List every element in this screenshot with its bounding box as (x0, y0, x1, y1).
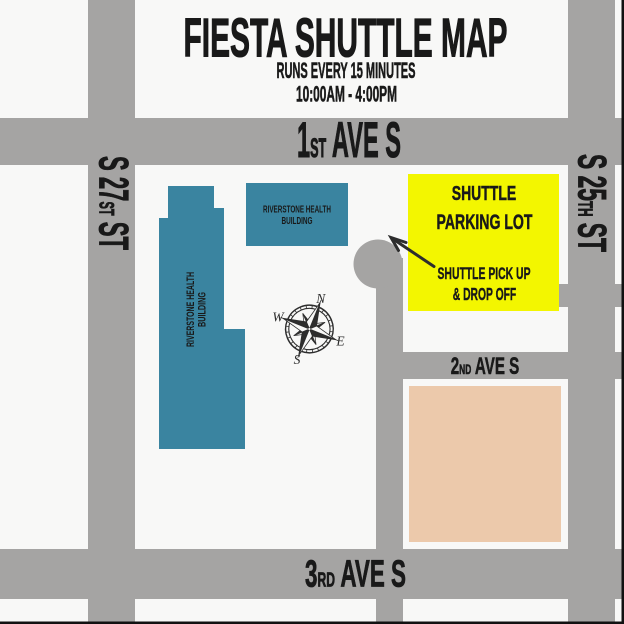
svg-text:10:00AM - 4:00PM: 10:00AM - 4:00PM (296, 82, 397, 107)
svg-text:W: W (272, 310, 285, 325)
svg-text:RIVERSTONE HEALTH: RIVERSTONE HEALTH (263, 204, 331, 216)
svg-text:N: N (315, 291, 326, 306)
svg-text:RIVERSTONE HEALTH: RIVERSTONE HEALTH (185, 272, 197, 347)
svg-text:BUILDING: BUILDING (197, 292, 209, 327)
svg-text:SHUTTLE PICK UP: SHUTTLE PICK UP (438, 265, 531, 283)
svg-text:BUILDING: BUILDING (282, 215, 313, 227)
svg-text:SHUTTLE: SHUTTLE (452, 182, 517, 205)
svg-text:RUNS EVERY 15 MINUTES: RUNS EVERY 15 MINUTES (277, 58, 416, 83)
svg-text:PARKING LOT: PARKING LOT (437, 210, 533, 234)
svg-text:& DROP OFF: & DROP OFF (453, 284, 517, 304)
svg-text:E: E (335, 334, 345, 349)
svg-text:S: S (294, 352, 301, 367)
